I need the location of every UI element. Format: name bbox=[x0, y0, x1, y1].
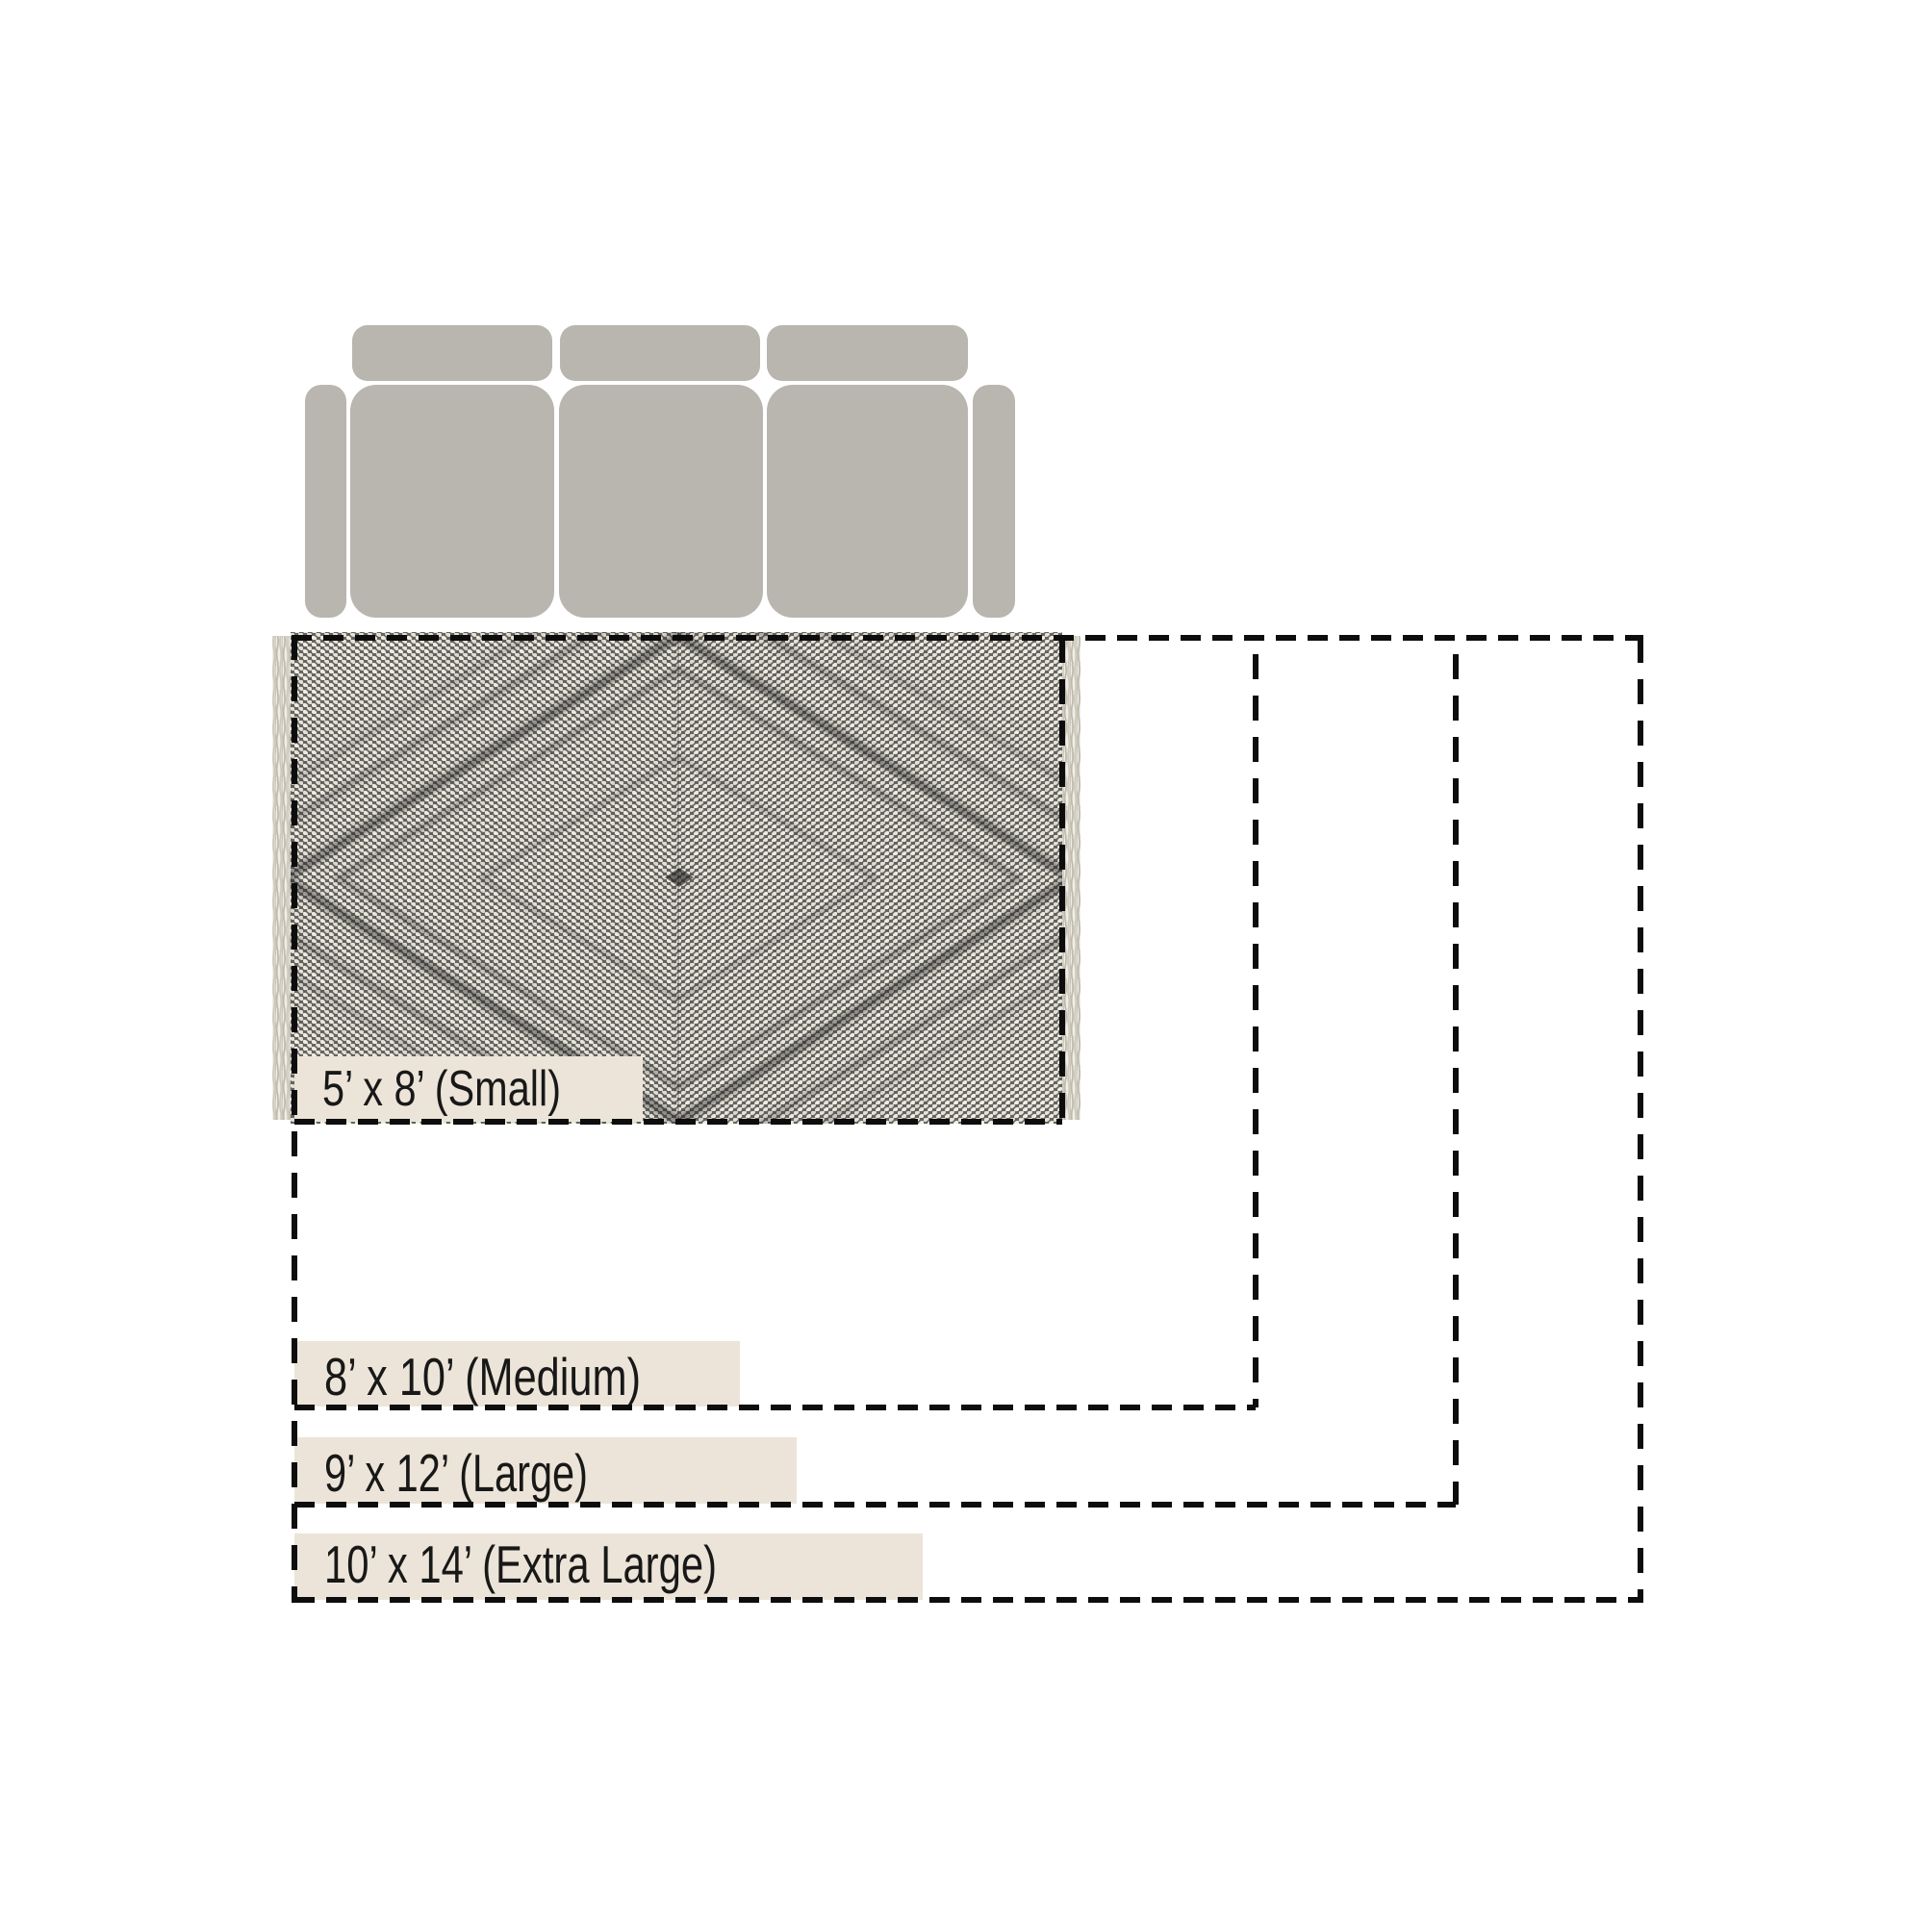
svg-text:9’ x 12’ (Large): 9’ x 12’ (Large) bbox=[324, 1443, 588, 1503]
svg-text:10’ x 14’ (Extra Large): 10’ x 14’ (Extra Large) bbox=[324, 1534, 717, 1594]
svg-text:8’ x 10’ (Medium): 8’ x 10’ (Medium) bbox=[324, 1347, 641, 1406]
svg-text:5’ x 8’ (Small): 5’ x 8’ (Small) bbox=[322, 1061, 561, 1117]
